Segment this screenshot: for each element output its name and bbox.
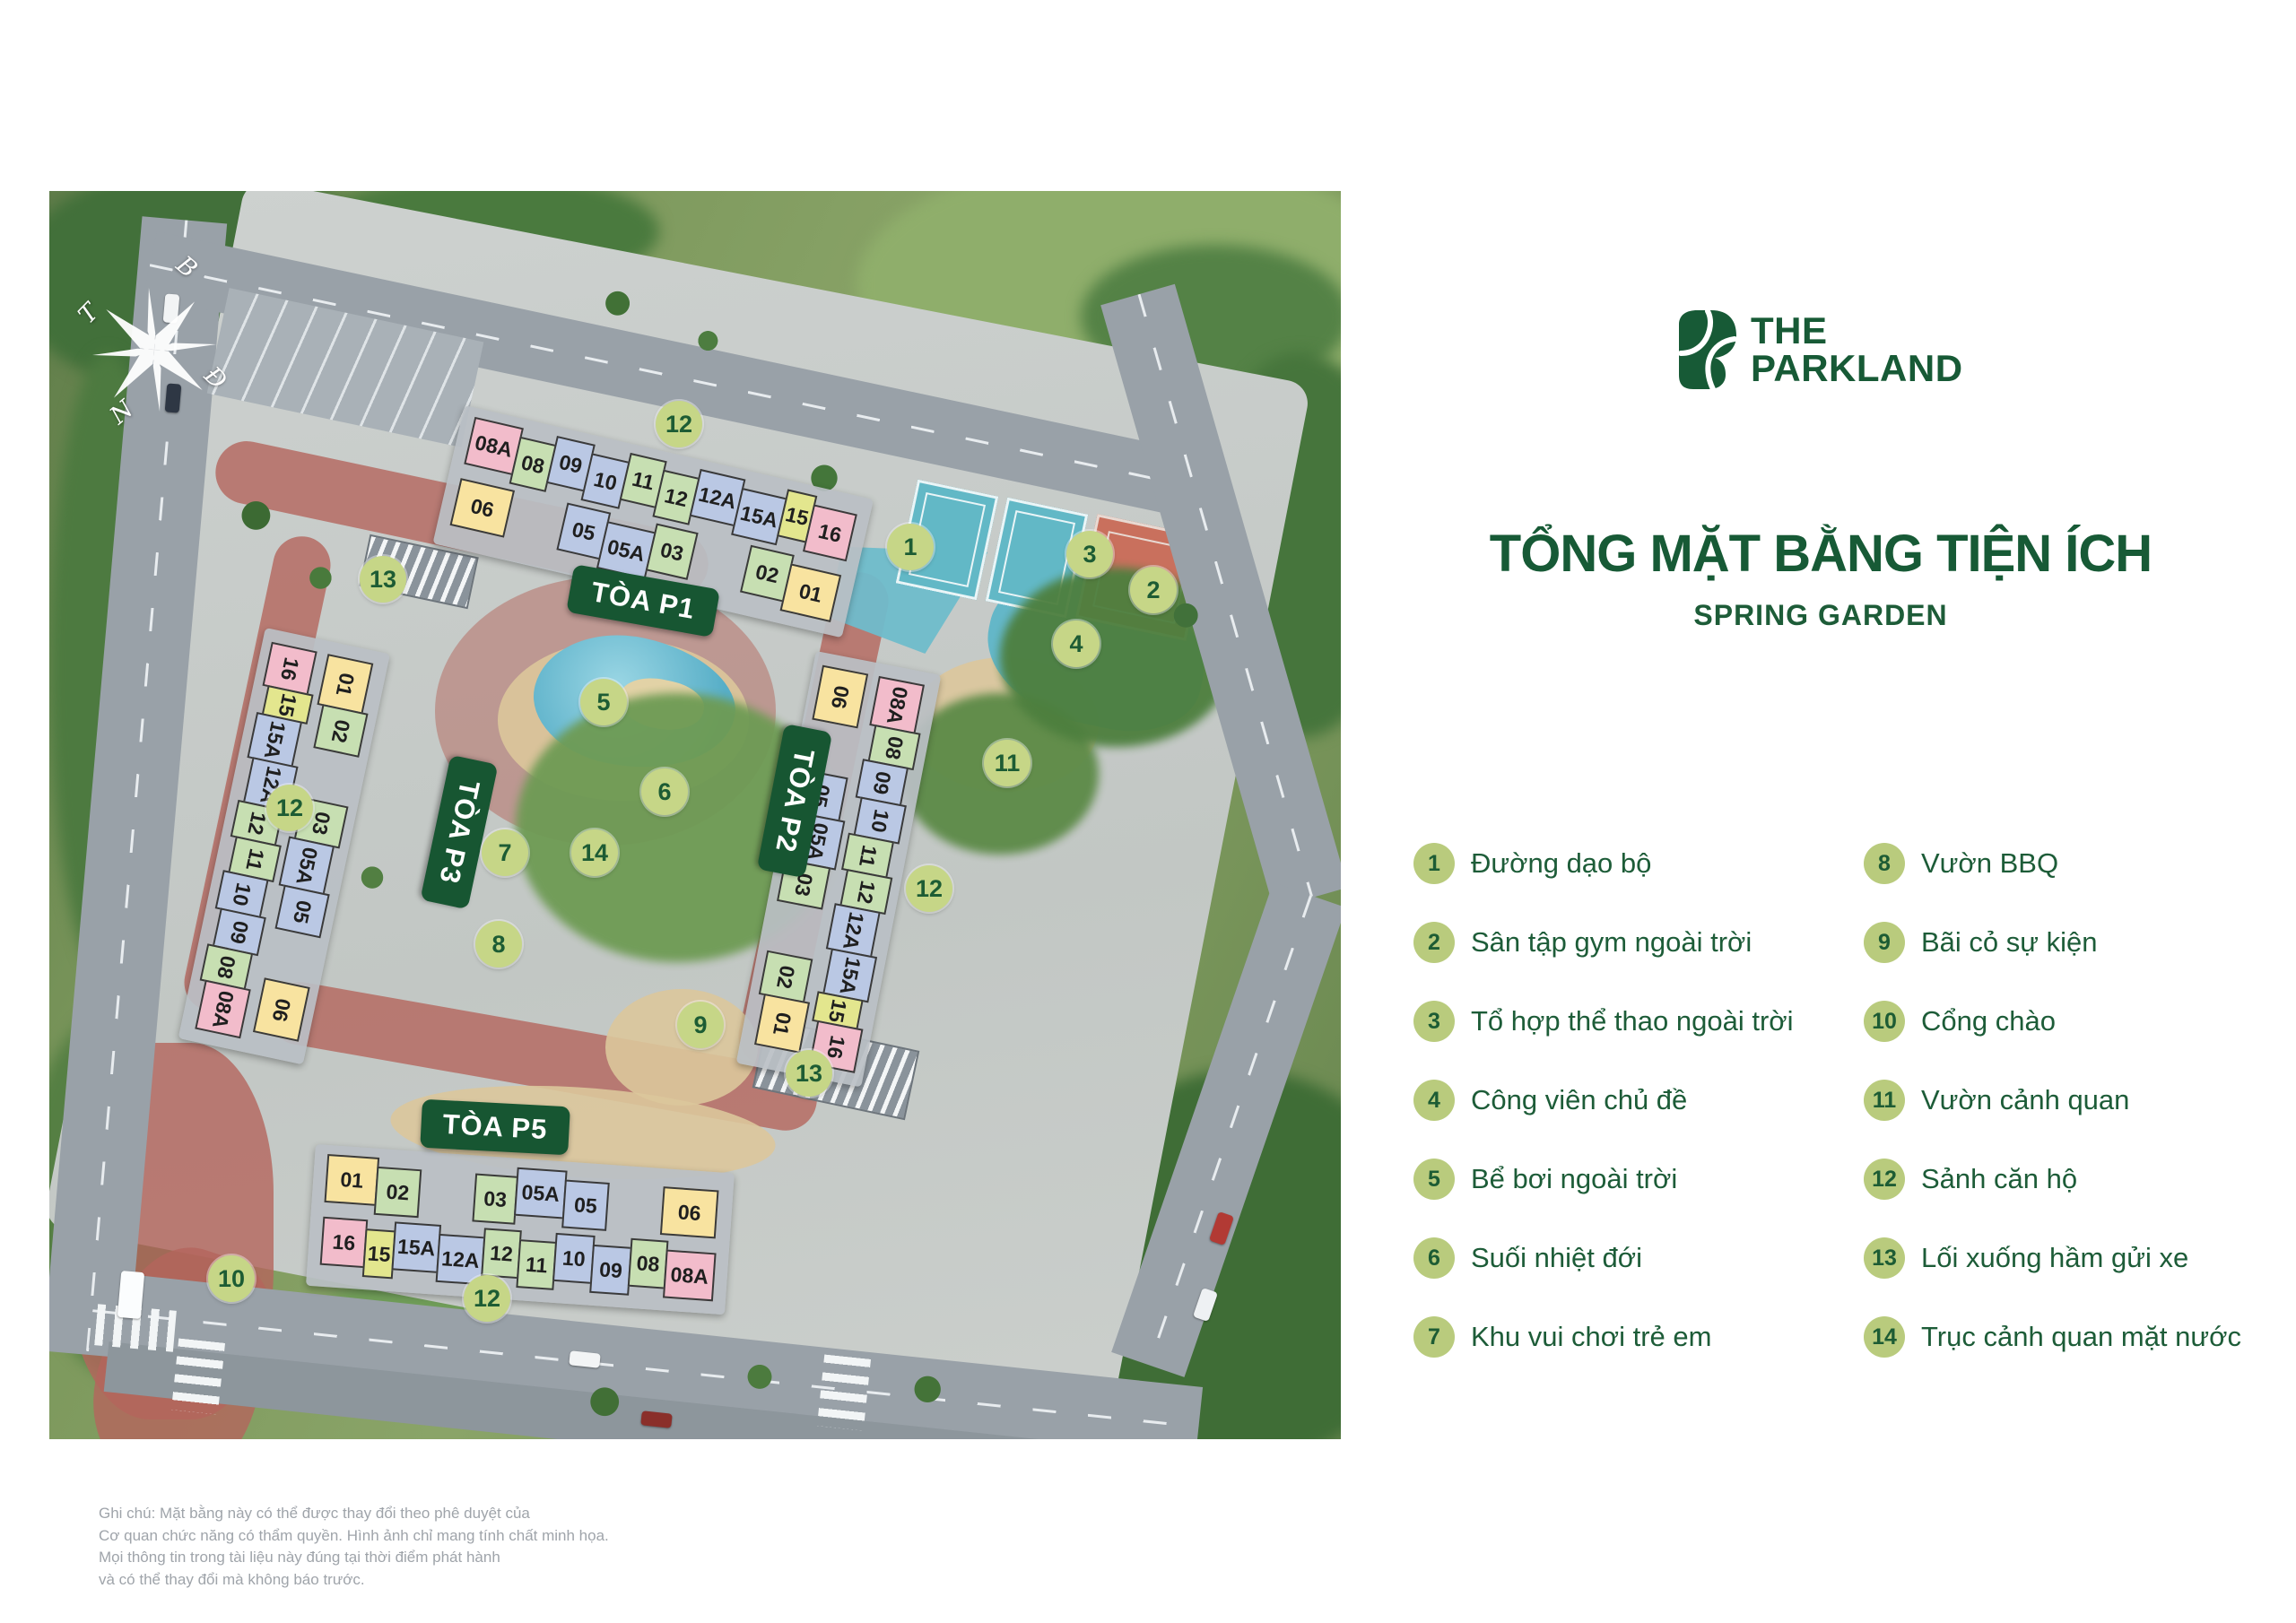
legend-item: 6Suối nhiệt đới <box>1413 1235 1835 1281</box>
legend-item: 12Sảnh căn hộ <box>1864 1156 2285 1202</box>
sand-patch <box>605 989 758 1106</box>
footnote-line: Ghi chú: Mặt bằng này có thể được thay đ… <box>99 1503 609 1525</box>
unit-01: 01 <box>754 994 810 1054</box>
legend-item: 7Khu vui chơi trẻ em <box>1413 1314 1835 1360</box>
legend-item-number: 13 <box>1864 1237 1905 1279</box>
brand-logo: THE PARKLAND <box>1675 308 1963 391</box>
legend-item-label: Suối nhiệt đới <box>1471 1242 1642 1274</box>
legend-item-number: 12 <box>1864 1159 1905 1200</box>
legend-item: 8Vườn BBQ <box>1864 840 2285 887</box>
unit-03: 03 <box>646 523 699 579</box>
amenity-marker-6: 6 <box>641 768 688 815</box>
legend-item-label: Bể bơi ngoài trời <box>1471 1163 1677 1195</box>
amenity-marker-11: 11 <box>984 740 1031 786</box>
legend-item-number: 9 <box>1864 922 1905 963</box>
amenity-marker-12: 12 <box>464 1275 510 1322</box>
legend-item-number: 7 <box>1413 1316 1455 1358</box>
crosswalk <box>171 1339 225 1415</box>
tower-label-p5: TÒA P5 <box>420 1099 570 1156</box>
legend-item-label: Trục cảnh quan mặt nước <box>1921 1321 2241 1353</box>
brand-name: THE PARKLAND <box>1751 312 1963 387</box>
amenity-marker-10: 10 <box>208 1255 255 1302</box>
car <box>569 1350 600 1367</box>
amenity-marker-5: 5 <box>580 679 627 725</box>
unit-15A: 15A <box>391 1221 441 1272</box>
legend-item: 5Bể bơi ngoài trời <box>1413 1156 1835 1202</box>
legend-item-number: 5 <box>1413 1159 1455 1200</box>
amenity-marker-12: 12 <box>906 865 952 912</box>
brand-line1: THE <box>1751 312 1963 350</box>
legend-item-label: Tổ hợp thể thao ngoài trời <box>1471 1005 1793 1037</box>
footnote-line: Mọi thông tin trong tài liệu này đúng tạ… <box>99 1547 609 1569</box>
unit-03: 03 <box>472 1174 518 1225</box>
legend-item: 1Đường dạo bộ <box>1413 840 1835 887</box>
legend-item-number: 8 <box>1864 843 1905 884</box>
building-p5: 01020305A0506161515A12A121110090808A <box>306 1144 735 1315</box>
footnote: Ghi chú: Mặt bằng này có thể được thay đ… <box>99 1503 609 1592</box>
amenity-marker-2: 2 <box>1130 567 1177 613</box>
unit-11: 11 <box>516 1239 557 1290</box>
unit-01: 01 <box>325 1154 380 1206</box>
unit-06: 06 <box>812 665 868 729</box>
unit-06: 06 <box>253 977 310 1041</box>
parkland-leaf-icon <box>1675 308 1738 391</box>
legend-item: 4Công viên chủ đề <box>1413 1077 1835 1124</box>
unit-08A: 08A <box>195 980 251 1039</box>
unit-08A: 08A <box>663 1250 717 1302</box>
car <box>640 1410 672 1428</box>
building-gap <box>422 1160 478 1164</box>
legend-item: 10Cổng chào <box>1864 998 2285 1045</box>
unit-05: 05 <box>561 1179 610 1230</box>
legend-item: 3Tổ hợp thể thao ngoài trời <box>1413 998 1835 1045</box>
legend-item: 13Lối xuống hầm gửi xe <box>1864 1235 2285 1281</box>
legend-item-number: 3 <box>1413 1001 1455 1042</box>
legend-item: 9Bãi cỏ sự kiện <box>1864 919 2285 966</box>
site-map: BTĐN 08A080910111212A15A1516060505A03020… <box>49 191 1341 1439</box>
unit-06: 06 <box>449 478 515 538</box>
unit-10: 10 <box>552 1233 596 1284</box>
crosswalk <box>817 1355 871 1431</box>
legend-item-label: Vườn cảnh quan <box>1921 1084 2129 1116</box>
legend-item-number: 6 <box>1413 1237 1455 1279</box>
amenity-marker-13: 13 <box>360 556 406 603</box>
legend-item-label: Cổng chào <box>1921 1005 2056 1037</box>
amenity-marker-12: 12 <box>266 785 313 831</box>
amenity-marker-13: 13 <box>786 1050 832 1097</box>
legend-item-label: Sân tập gym ngoài trời <box>1471 926 1752 959</box>
page-title: TỔNG MẶT BẰNG TIỆN ÍCH <box>1399 524 2242 584</box>
page-subtitle: SPRING GARDEN <box>1399 599 2242 632</box>
building-gap <box>610 1174 665 1177</box>
legend-item-number: 2 <box>1413 922 1455 963</box>
bus <box>117 1271 144 1319</box>
legend-item: 2Sân tập gym ngoài trời <box>1413 919 1835 966</box>
legend-item-label: Lối xuống hầm gửi xe <box>1921 1242 2188 1274</box>
unit-01: 01 <box>780 563 842 622</box>
legend-item-number: 11 <box>1864 1080 1905 1121</box>
legend-item-number: 14 <box>1864 1316 1905 1358</box>
legend-item: 14Trục cảnh quan mặt nước <box>1864 1314 2285 1360</box>
legend-item-label: Bãi cỏ sự kiện <box>1921 926 2098 959</box>
legend-item-number: 4 <box>1413 1080 1455 1121</box>
footnote-line: Cơ quan chức năng có thẩm quyền. Hình ản… <box>99 1525 609 1548</box>
legend-item-number: 1 <box>1413 843 1455 884</box>
legend-item-label: Khu vui chơi trẻ em <box>1471 1321 1711 1353</box>
legend-item-label: Vườn BBQ <box>1921 847 2058 880</box>
unit-08: 08 <box>628 1238 669 1289</box>
unit-02: 02 <box>374 1167 422 1218</box>
amenity-marker-3: 3 <box>1066 531 1113 577</box>
brand-line2: PARKLAND <box>1751 350 1963 387</box>
amenity-marker-12: 12 <box>656 401 702 447</box>
amenity-marker-9: 9 <box>677 1002 724 1048</box>
unit-09: 09 <box>589 1245 632 1296</box>
amenity-marker-1: 1 <box>887 524 934 570</box>
legend-item-label: Công viên chủ đề <box>1471 1084 1687 1116</box>
legend-item-label: Đường dạo bộ <box>1471 847 1651 880</box>
unit-15: 15 <box>362 1228 396 1279</box>
footnote-line: và có thể thay đổi mà không báo trước. <box>99 1569 609 1592</box>
page: BTĐN 08A080910111212A15A1516060505A03020… <box>0 0 2296 1623</box>
amenity-marker-14: 14 <box>571 829 618 876</box>
unit-06: 06 <box>660 1186 719 1238</box>
unit-12: 12 <box>481 1228 522 1279</box>
unit-16: 16 <box>320 1217 369 1268</box>
amenity-marker-7: 7 <box>482 829 528 876</box>
unit-16: 16 <box>803 504 857 561</box>
legend-column-right: 8Vườn BBQ9Bãi cỏ sự kiện10Cổng chào11Vườ… <box>1864 840 2285 1393</box>
legend-column-left: 1Đường dạo bộ2Sân tập gym ngoài trời3Tổ … <box>1413 840 1835 1393</box>
compass-rose <box>87 282 222 417</box>
amenity-marker-8: 8 <box>475 921 522 968</box>
unit-05A: 05A <box>514 1167 568 1219</box>
amenity-marker-4: 4 <box>1053 621 1100 667</box>
legend-item: 11Vườn cảnh quan <box>1864 1077 2285 1124</box>
legend-item-label: Sảnh căn hộ <box>1921 1163 2077 1195</box>
legend-item-number: 10 <box>1864 1001 1905 1042</box>
